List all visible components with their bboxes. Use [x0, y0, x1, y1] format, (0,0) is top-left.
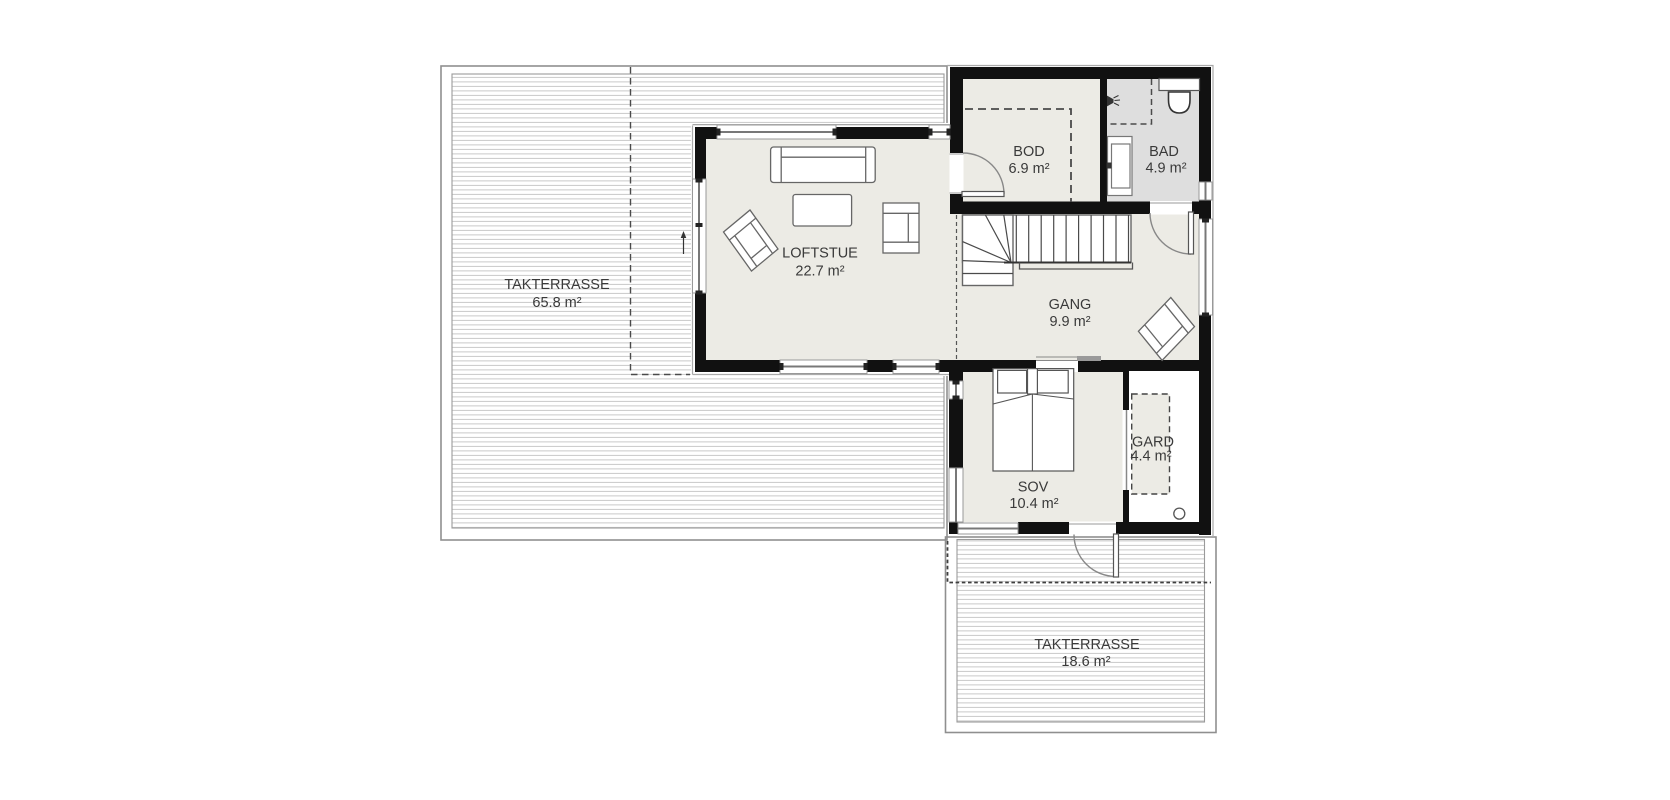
svg-text:BAD: BAD [1149, 144, 1179, 160]
svg-text:10.4 m²: 10.4 m² [1009, 496, 1058, 512]
svg-text:4.9 m²: 4.9 m² [1145, 161, 1186, 177]
svg-text:22.7 m²: 22.7 m² [795, 264, 844, 280]
svg-text:SOV: SOV [1018, 480, 1049, 496]
svg-text:4.4 m²: 4.4 m² [1130, 449, 1171, 465]
svg-text:BOD: BOD [1013, 144, 1044, 160]
svg-text:65.8 m²: 65.8 m² [532, 295, 581, 311]
svg-text:18.6 m²: 18.6 m² [1061, 654, 1110, 670]
svg-text:9.9 m²: 9.9 m² [1049, 314, 1090, 330]
svg-text:6.9 m²: 6.9 m² [1008, 161, 1049, 177]
svg-text:GANG: GANG [1049, 297, 1092, 313]
svg-text:LOFTSTUE: LOFTSTUE [782, 246, 858, 262]
svg-text:TAKTERRASSE: TAKTERRASSE [1034, 637, 1140, 653]
svg-text:TAKTERRASSE: TAKTERRASSE [504, 277, 610, 293]
